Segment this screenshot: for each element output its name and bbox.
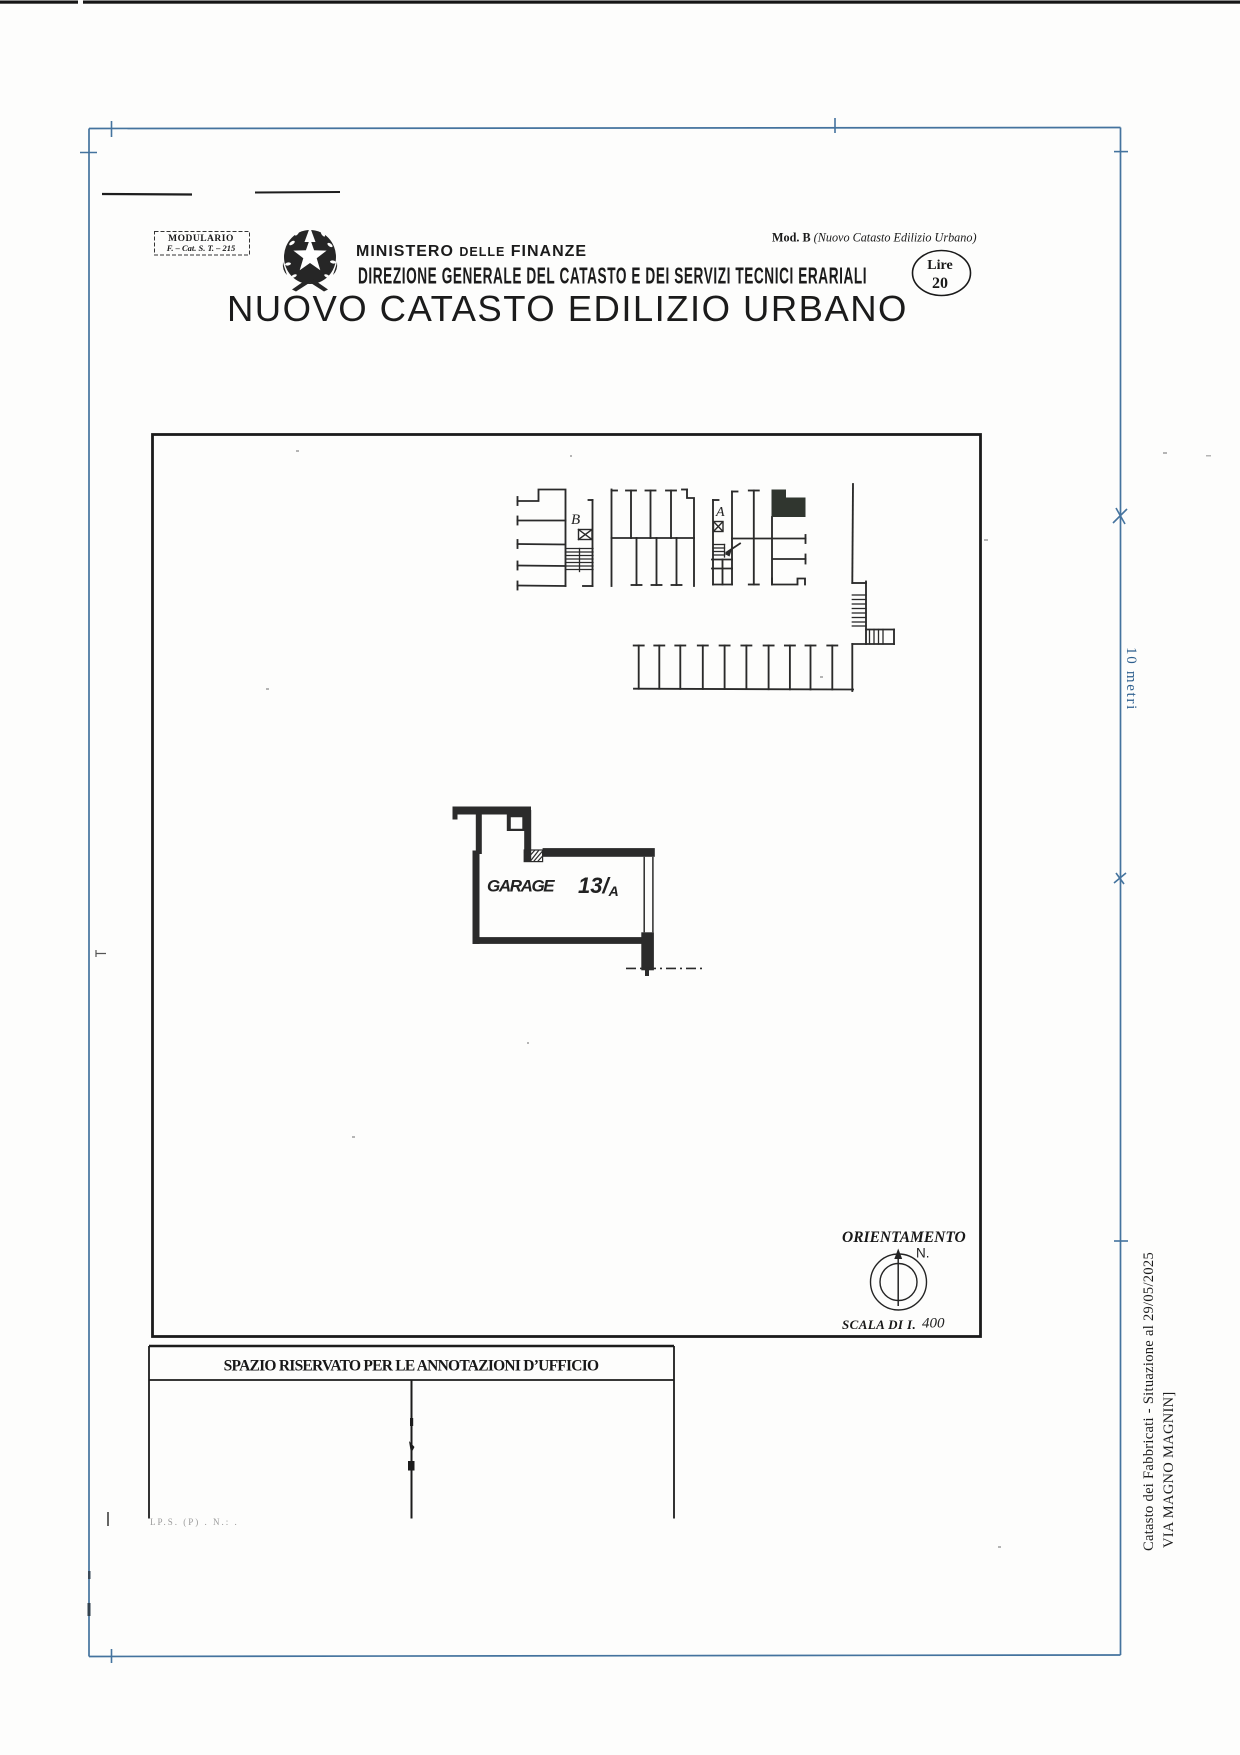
svg-text:Catasto dei Fabbricati - Situa: Catasto dei Fabbricati - Situazione al 2… — [1141, 1252, 1157, 1551]
svg-text:DIREZIONE GENERALE DEL CATASTO: DIREZIONE GENERALE DEL CATASTO E DEI SER… — [358, 264, 867, 290]
svg-text:NUOVO CATASTO EDILIZIO URBANO: NUOVO CATASTO EDILIZIO URBANO — [227, 288, 908, 329]
svg-text:A: A — [715, 505, 725, 520]
svg-text:SCALA DI I.: SCALA DI I. — [842, 1317, 916, 1332]
svg-text:VIA MAGNO MAGNIN]: VIA MAGNO MAGNIN] — [1161, 1391, 1177, 1548]
svg-text:10 metri: 10 metri — [1123, 647, 1139, 711]
svg-text:ORIENTAMENTO: ORIENTAMENTO — [842, 1229, 966, 1246]
svg-text:13/A: 13/A — [578, 873, 619, 899]
svg-text:SPAZIO RISERVATO PER LE ANNOTA: SPAZIO RISERVATO PER LE ANNOTAZIONI D’UF… — [224, 1358, 599, 1375]
svg-text:GARAGE: GARAGE — [487, 877, 555, 896]
svg-text:Mod. B (Nuovo Catasto Edilizio: Mod. B (Nuovo Catasto Edilizio Urbano) — [772, 231, 977, 245]
svg-text:F. – Cat. S. T. – 215: F. – Cat. S. T. – 215 — [166, 243, 236, 253]
svg-text:Lire: Lire — [927, 258, 952, 273]
svg-text:MINISTERO DELLE FINANZE: MINISTERO DELLE FINANZE — [356, 243, 587, 260]
svg-text:LP.S. (P) . N.: .: LP.S. (P) . N.: . — [150, 1517, 239, 1527]
svg-text:400: 400 — [922, 1316, 945, 1332]
svg-text:B: B — [571, 512, 580, 528]
svg-text:20: 20 — [932, 275, 948, 292]
svg-text:N.: N. — [916, 1246, 930, 1261]
